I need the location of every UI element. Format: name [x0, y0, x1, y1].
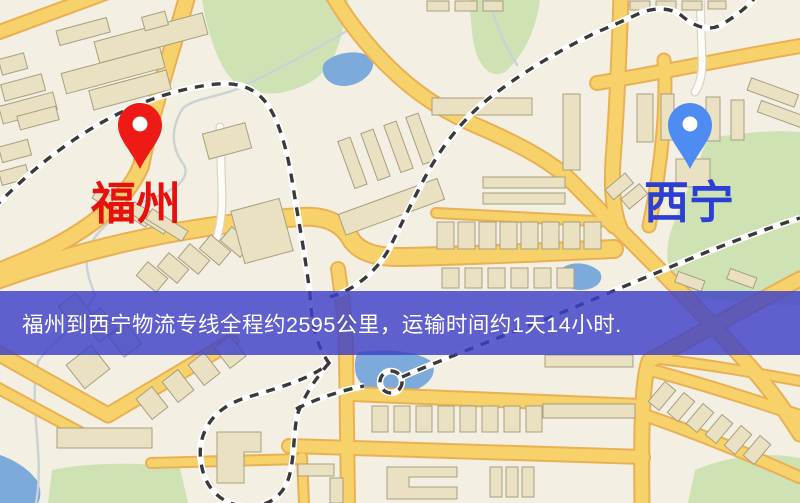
building [545, 355, 633, 367]
building [563, 94, 580, 170]
building [708, 1, 726, 9]
destination-label: 西宁 [644, 176, 734, 229]
building [394, 406, 410, 432]
building [442, 268, 459, 288]
building [438, 406, 454, 432]
building [458, 222, 475, 249]
building [460, 406, 476, 432]
building [500, 222, 517, 249]
building [427, 1, 449, 11]
map-canvas[interactable]: 福州 西宁 [0, 0, 800, 503]
building [490, 467, 502, 497]
map-screenshot: 福州 西宁 福州到西宁物流专线全程约2595公里，运输时间约1天14小时. [0, 0, 800, 503]
building [557, 268, 574, 288]
building [506, 467, 518, 497]
building [522, 467, 534, 497]
pin-hole [683, 117, 698, 132]
building [483, 193, 565, 204]
building [416, 406, 432, 432]
building [57, 428, 152, 448]
building [526, 406, 542, 432]
building [483, 177, 565, 188]
pin-hole [133, 117, 148, 132]
building [563, 222, 580, 249]
building [504, 406, 520, 432]
building [637, 94, 653, 142]
building [543, 404, 635, 418]
building [437, 222, 454, 249]
building [542, 222, 559, 249]
building [298, 464, 334, 476]
building [372, 406, 388, 432]
building [479, 222, 496, 249]
route-info-text: 福州到西宁物流专线全程约2595公里，运输时间约1天14小时. [22, 308, 622, 339]
route-info-banner: 福州到西宁物流专线全程约2595公里，运输时间约1天14小时. [0, 291, 800, 355]
origin-label: 福州 [90, 177, 181, 230]
building [465, 268, 482, 288]
building [584, 222, 601, 249]
building [330, 478, 343, 503]
building [488, 268, 505, 288]
building [682, 1, 702, 10]
park [48, 464, 188, 503]
building [521, 222, 538, 249]
building [534, 268, 551, 288]
building [482, 406, 498, 432]
building [455, 1, 477, 11]
building [511, 268, 528, 288]
building [731, 100, 744, 140]
building [483, 1, 503, 11]
